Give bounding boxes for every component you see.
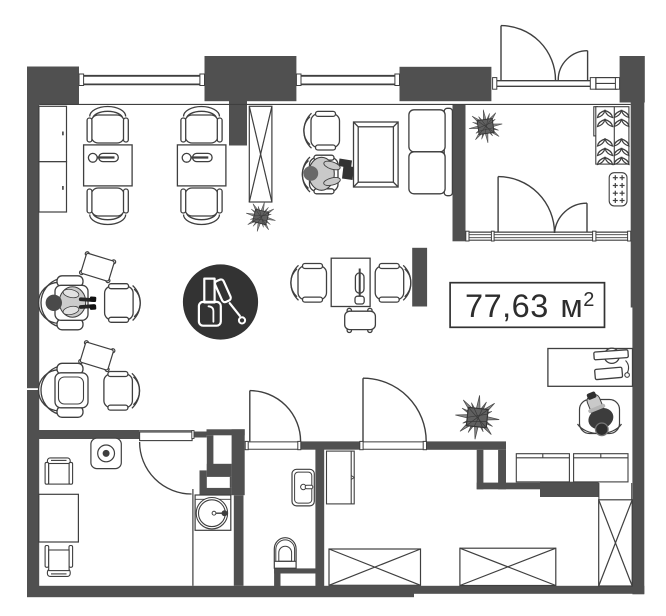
svg-text:77,63 м2: 77,63 м2 (465, 288, 595, 324)
